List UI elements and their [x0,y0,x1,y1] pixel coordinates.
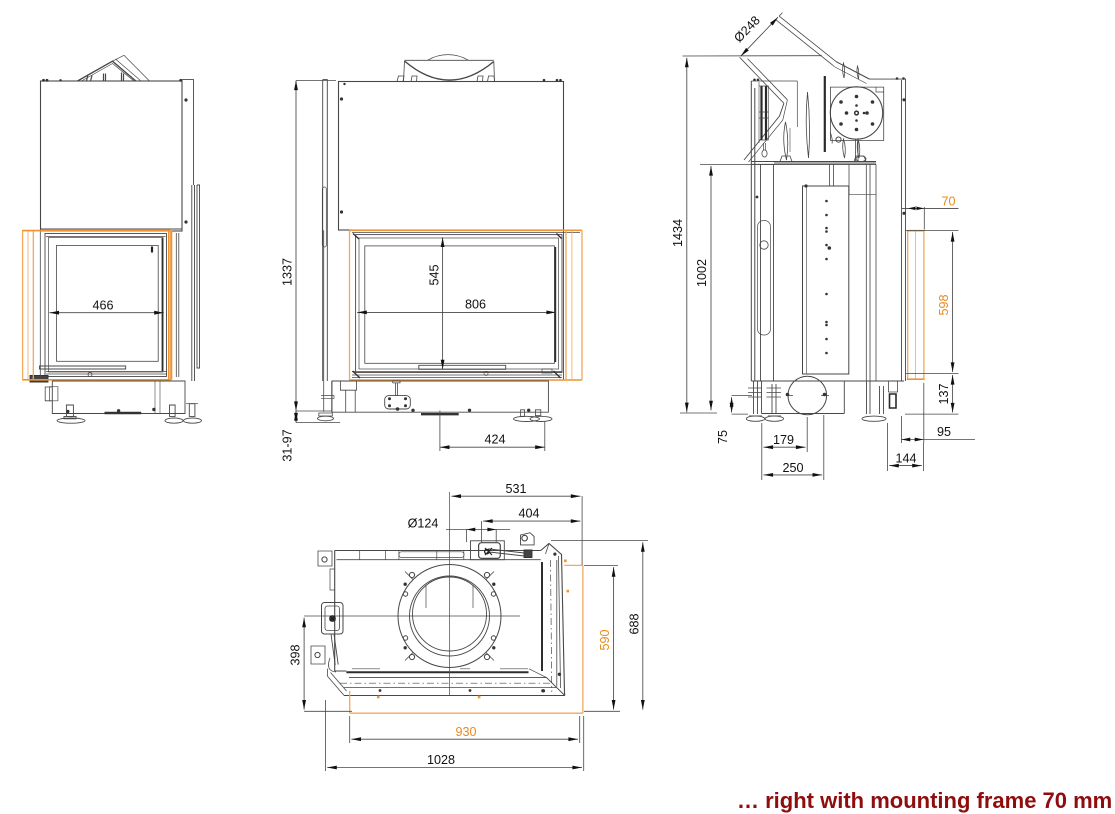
svg-text:404: 404 [518,507,539,521]
svg-text:75: 75 [716,430,730,444]
svg-text:31-97: 31-97 [281,429,295,461]
svg-text:1337: 1337 [281,258,295,286]
svg-text:424: 424 [484,433,505,447]
svg-text:545: 545 [428,264,442,285]
svg-text:688: 688 [627,613,641,634]
svg-text:806: 806 [465,298,486,312]
svg-text:Ø124: Ø124 [408,517,439,531]
svg-text:70: 70 [941,194,955,208]
svg-text:250: 250 [782,461,803,475]
svg-text:144: 144 [895,452,916,466]
svg-text:590: 590 [598,629,612,650]
svg-text:95: 95 [937,425,951,439]
svg-text:1002: 1002 [695,259,709,287]
svg-text:598: 598 [937,294,951,315]
svg-text:1028: 1028 [427,753,455,767]
svg-text:137: 137 [937,383,951,404]
svg-text:398: 398 [289,644,303,665]
svg-text:… right with mounting frame 70: … right with mounting frame 70 mm [737,788,1112,813]
svg-text:930: 930 [455,725,476,739]
svg-text:531: 531 [505,482,526,496]
svg-text:1434: 1434 [671,219,685,247]
svg-text:466: 466 [92,299,113,313]
svg-text:179: 179 [773,433,794,447]
